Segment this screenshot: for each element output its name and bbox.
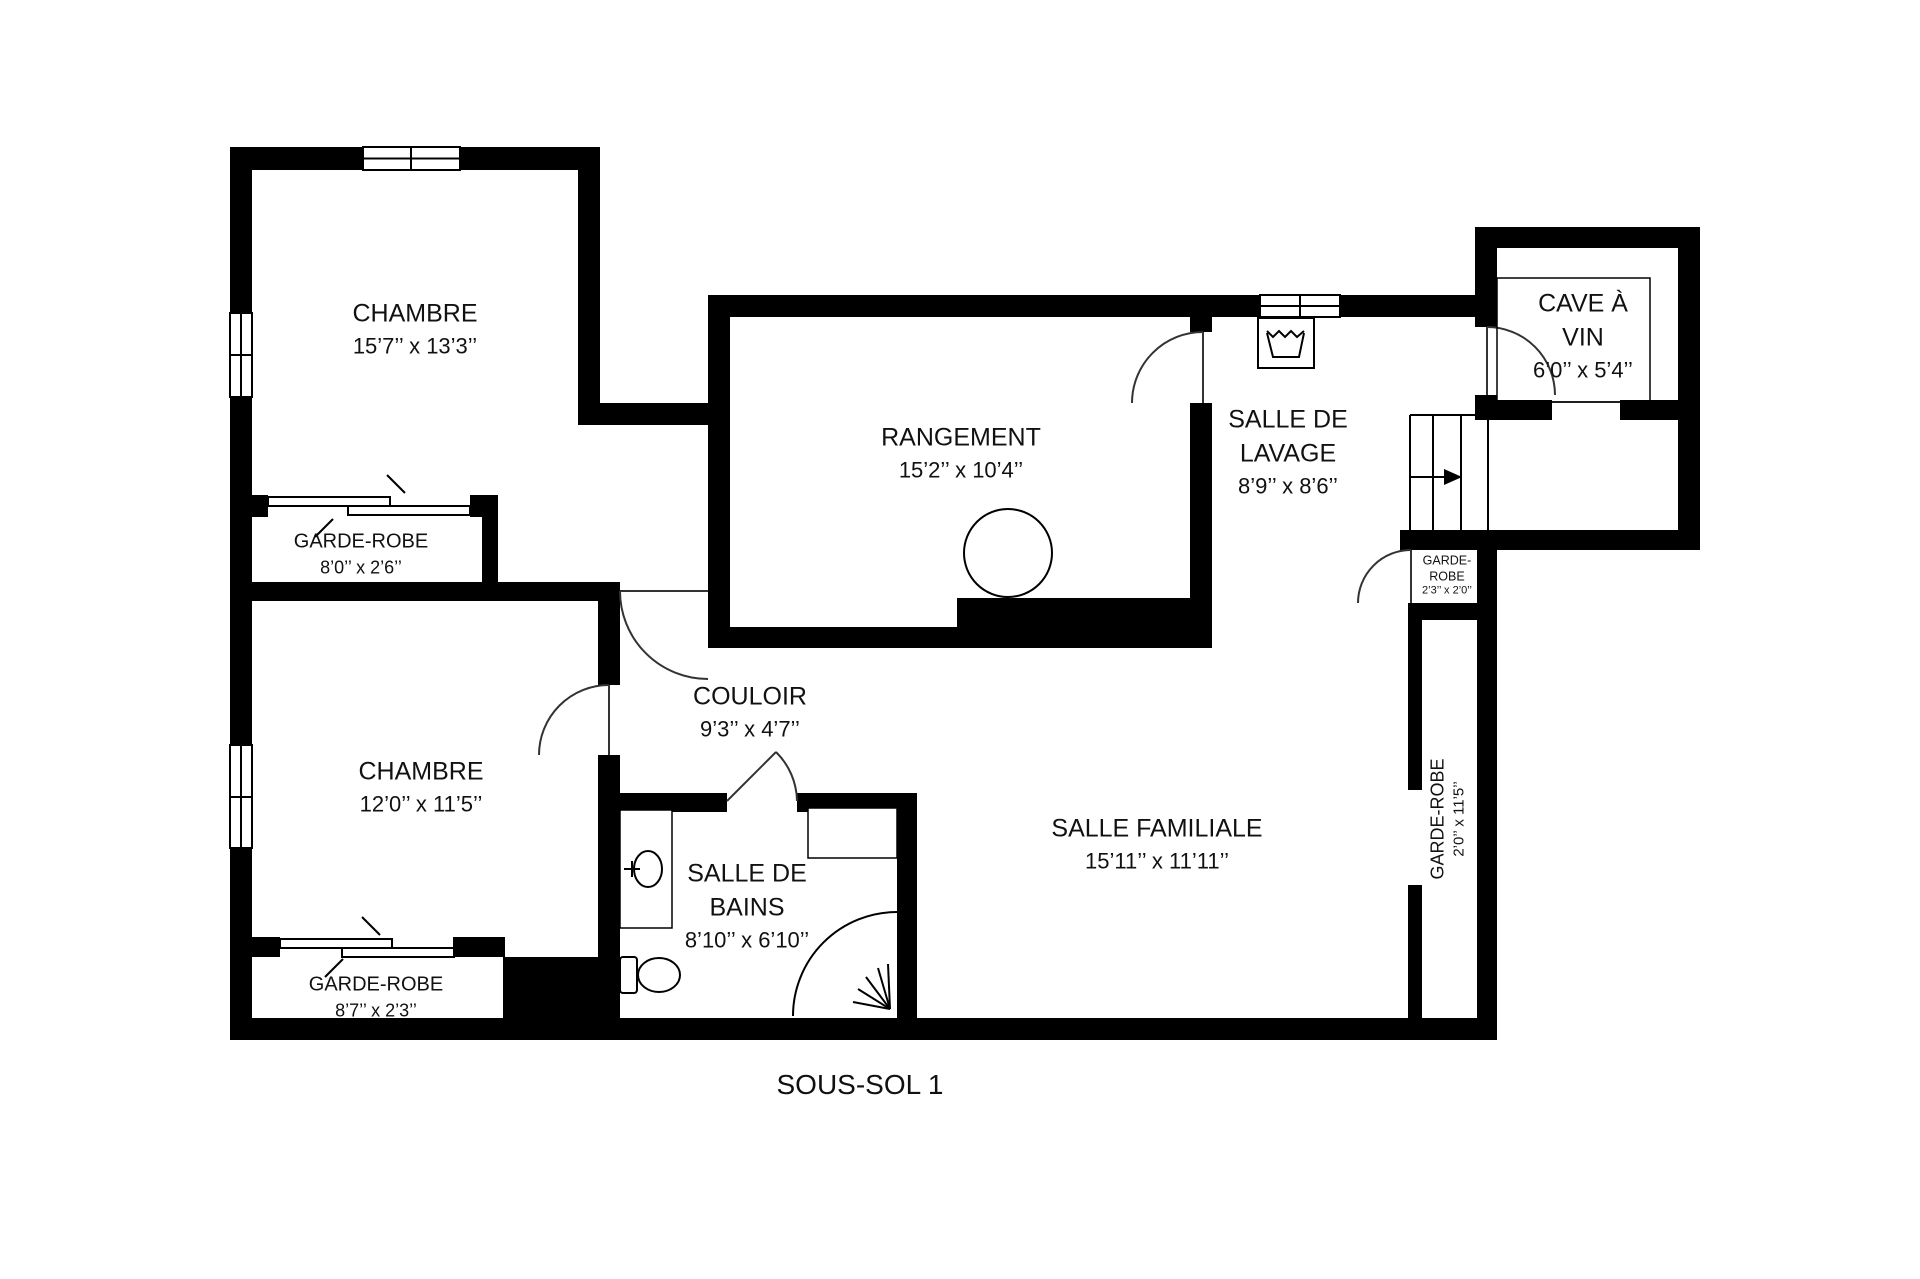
room-dimensions: 8’9’’ x 8’6’’: [1228, 471, 1348, 501]
room-name: GARDE-ROBE: [1427, 758, 1450, 879]
window-symbol: [363, 147, 460, 170]
room-name: SALLE FAMILIALE: [1051, 812, 1262, 846]
room-dimensions: 2’0’’ x 11’5’’: [1450, 758, 1470, 879]
room-label-garde-robe-vertical: GARDE-ROBE 2’0’’ x 11’5’’: [1427, 758, 1470, 879]
floor-plan: CHAMBRE 15’7’’ x 13’3’’ GARDE-ROBE 8’0’’…: [0, 0, 1920, 1279]
room-name: CHAMBRE: [358, 755, 483, 789]
room-name: LAVAGE: [1228, 437, 1348, 471]
room-name: ROBE: [1422, 569, 1472, 585]
room-name: RANGEMENT: [881, 421, 1041, 455]
window-symbol: [1260, 295, 1340, 317]
room-name: CHAMBRE: [352, 297, 477, 331]
room-name: BAINS: [685, 891, 809, 925]
room-label-chambre-bottom: CHAMBRE 12’0’’ x 11’5’’: [358, 755, 483, 818]
room-label-garde-robe-bottom: GARDE-ROBE 8’7’’ x 2’3’’: [309, 971, 443, 1022]
room-dimensions: 15’11’’ x 11’11’’: [1051, 846, 1262, 876]
room-name: VIN: [1533, 321, 1633, 355]
room-name: GARDE-ROBE: [309, 971, 443, 998]
water-heater-tank-icon: [964, 509, 1052, 597]
room-dimensions: 12’0’’ x 11’5’’: [358, 789, 483, 819]
toilet-icon: [620, 957, 680, 993]
room-label-cave-a-vin: CAVE À VIN 6’0’’ x 5’4’’: [1533, 287, 1633, 384]
room-name: SALLE DE: [685, 857, 809, 891]
room-label-garde-robe-small: GARDE- ROBE 2’3’’ x 2’0’’: [1422, 554, 1472, 599]
window-symbol: [230, 313, 252, 397]
room-label-salle-familiale: SALLE FAMILIALE 15’11’’ x 11’11’’: [1051, 812, 1262, 875]
plan-symbols: [0, 0, 1920, 1279]
room-label-rangement: RANGEMENT 15’2’’ x 10’4’’: [881, 421, 1041, 484]
bathroom-counter: [808, 808, 897, 858]
room-name: SALLE DE: [1228, 403, 1348, 437]
window-symbol: [230, 745, 252, 848]
room-label-couloir: COULOIR 9’3’’ x 4’7’’: [693, 680, 807, 743]
room-dimensions: 8’0’’ x 2’6’’: [294, 555, 428, 579]
room-dimensions: 8’7’’ x 2’3’’: [309, 998, 443, 1022]
room-name: COULOIR: [693, 680, 807, 714]
room-dimensions: 8’10’’ x 6’10’’: [685, 925, 809, 955]
room-dimensions: 9’3’’ x 4’7’’: [693, 714, 807, 744]
plan-title: SOUS-SOL 1: [776, 1066, 943, 1104]
room-dimensions: 15’7’’ x 13’3’’: [352, 331, 477, 361]
stairs-direction-arrow: [1444, 469, 1462, 485]
laundry-tub-icon: [1258, 318, 1314, 368]
room-label-chambre-top: CHAMBRE 15’7’’ x 13’3’’: [352, 297, 477, 360]
room-name: GARDE-ROBE: [294, 528, 428, 555]
room-dimensions: 6’0’’ x 5’4’’: [1533, 355, 1633, 385]
room-label-salle-de-lavage: SALLE DE LAVAGE 8’9’’ x 8’6’’: [1228, 403, 1348, 500]
room-dimensions: 15’2’’ x 10’4’’: [881, 455, 1041, 485]
room-name: CAVE À: [1533, 287, 1633, 321]
room-label-salle-de-bains: SALLE DE BAINS 8’10’’ x 6’10’’: [685, 857, 809, 954]
sliding-door-symbol: [280, 917, 454, 977]
room-label-garde-robe-top: GARDE-ROBE 8’0’’ x 2’6’’: [294, 528, 428, 579]
room-dimensions: 2’3’’ x 2’0’’: [1422, 585, 1472, 599]
room-name: GARDE-: [1422, 554, 1472, 570]
